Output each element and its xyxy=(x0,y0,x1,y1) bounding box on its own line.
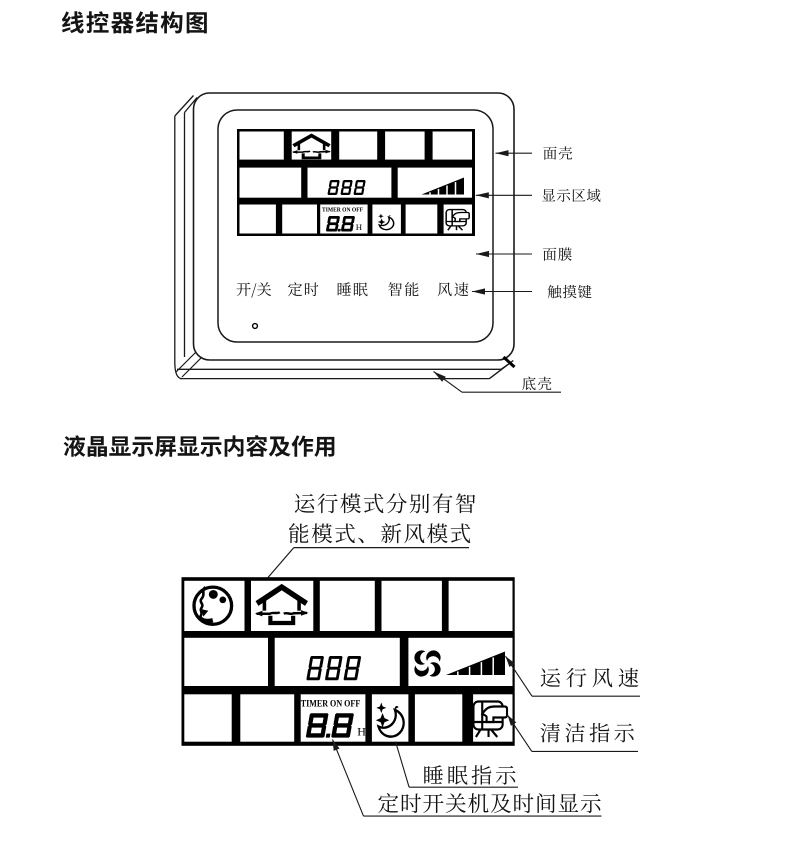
svg-text:H: H xyxy=(357,725,366,739)
svg-text:TIMER ON OFF: TIMER ON OFF xyxy=(322,206,363,213)
svg-text:TIMER ON OFF: TIMER ON OFF xyxy=(301,699,361,710)
svg-text:H: H xyxy=(356,222,363,232)
